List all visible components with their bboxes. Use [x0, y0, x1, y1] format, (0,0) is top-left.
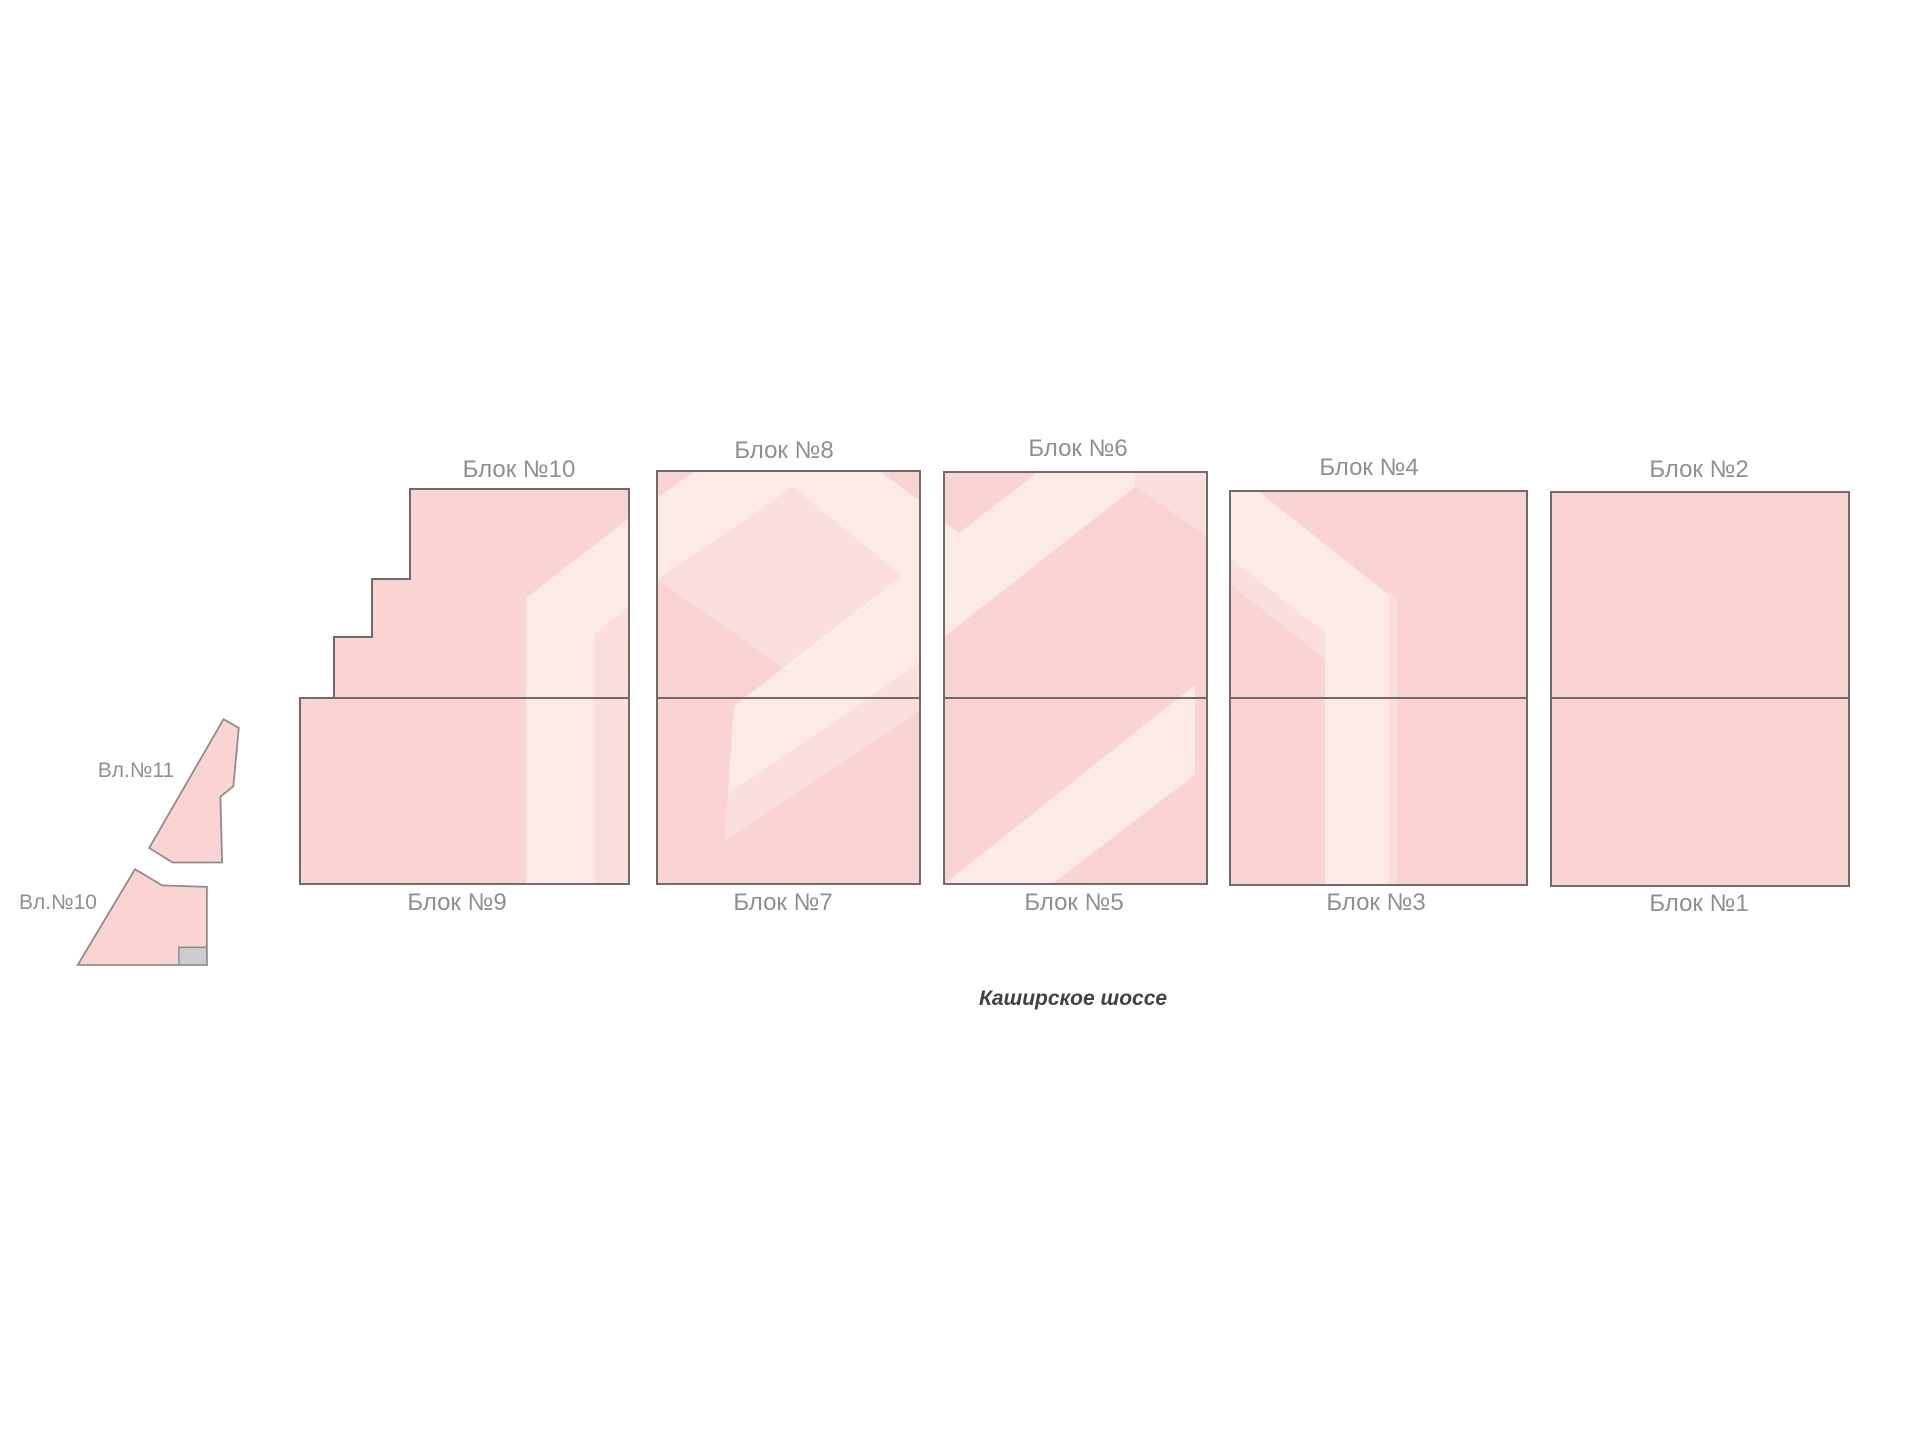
svg-text:Вл.№10: Вл.№10 [19, 891, 97, 914]
svg-text:Вл.№11: Вл.№11 [98, 759, 174, 782]
svg-text:Блок №4: Блок №4 [1319, 454, 1418, 481]
svg-text:Блок №5: Блок №5 [1024, 889, 1123, 916]
svg-text:Каширское шоссе: Каширское шоссе [979, 987, 1167, 1010]
svg-text:Блок №3: Блок №3 [1326, 889, 1425, 916]
svg-text:Блок №8: Блок №8 [734, 437, 833, 464]
svg-text:Блок №10: Блок №10 [463, 456, 576, 483]
svg-text:Блок №1: Блок №1 [1649, 890, 1748, 917]
svg-text:Блок №9: Блок №9 [407, 889, 506, 916]
svg-text:Блок №2: Блок №2 [1649, 456, 1748, 483]
svg-text:Блок №6: Блок №6 [1028, 435, 1127, 462]
svg-text:Блок №7: Блок №7 [733, 889, 832, 916]
